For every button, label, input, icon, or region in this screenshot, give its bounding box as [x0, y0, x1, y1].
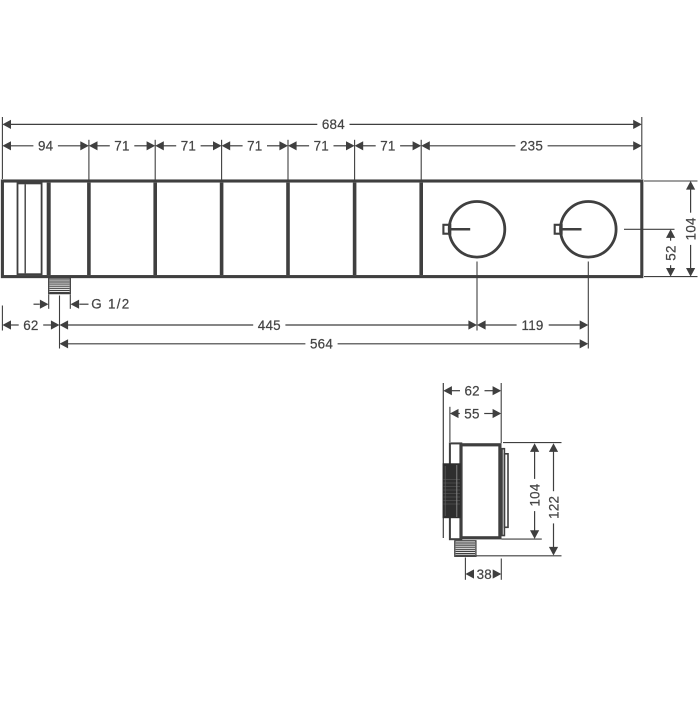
svg-text:55: 55: [464, 406, 479, 421]
svg-text:62: 62: [23, 318, 38, 333]
svg-text:122: 122: [546, 496, 561, 519]
svg-text:235: 235: [520, 139, 543, 154]
svg-text:38: 38: [477, 567, 492, 582]
svg-text:445: 445: [258, 318, 281, 333]
svg-text:71: 71: [314, 139, 329, 154]
svg-text:G 1/2: G 1/2: [91, 297, 130, 312]
svg-text:564: 564: [310, 337, 333, 352]
svg-text:684: 684: [322, 117, 345, 132]
svg-text:52: 52: [663, 245, 678, 260]
svg-text:71: 71: [380, 139, 395, 154]
svg-text:71: 71: [181, 139, 196, 154]
svg-text:94: 94: [38, 139, 54, 154]
svg-text:104: 104: [527, 483, 542, 506]
svg-text:104: 104: [683, 217, 698, 240]
svg-text:119: 119: [522, 318, 544, 333]
svg-text:62: 62: [464, 383, 479, 398]
svg-text:71: 71: [114, 139, 129, 154]
svg-text:71: 71: [247, 139, 262, 154]
